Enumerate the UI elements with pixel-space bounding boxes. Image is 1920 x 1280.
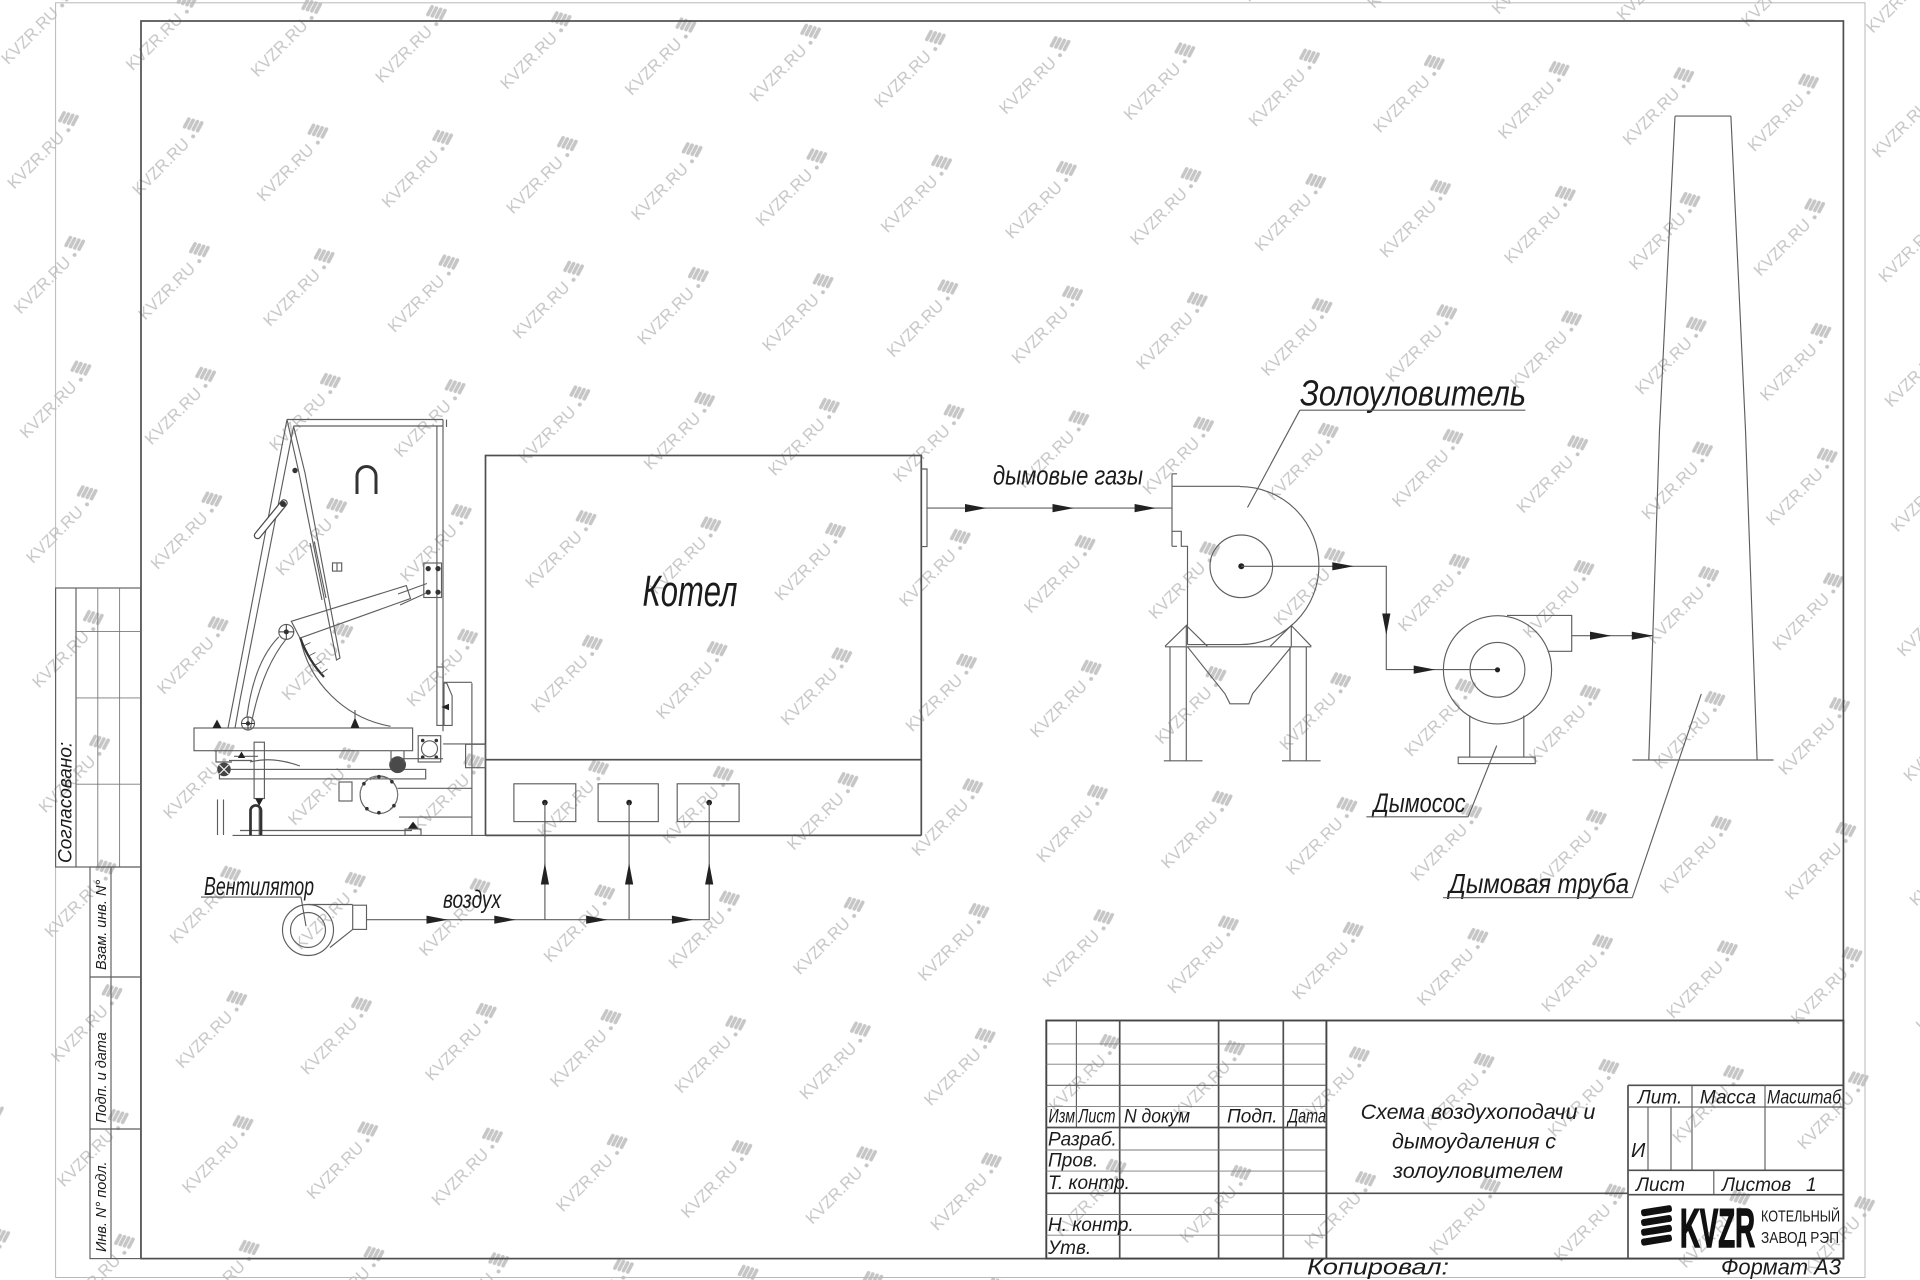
svg-text:Дымовая труба: Дымовая труба [1446,868,1629,899]
svg-text:Котел: Котел [643,567,738,616]
svg-text:Золоуловитель: Золоуловитель [1300,373,1526,414]
svg-text:Взам. инв. N°: Взам. инв. N° [94,880,110,970]
svg-text:Н. контр.: Н. контр. [1048,1215,1134,1236]
svg-text:И: И [1631,1140,1646,1162]
svg-text:KVZR: KVZR [1680,1197,1755,1259]
svg-text:Утв.: Утв. [1047,1238,1091,1259]
svg-text:Листов: Листов [1720,1175,1791,1196]
svg-text:Вентилятор: Вентилятор [204,871,314,901]
svg-text:Лист: Лист [1077,1107,1116,1128]
svg-text:Пров.: Пров. [1048,1151,1098,1172]
svg-text:дымоудаления с: дымоудаления с [1392,1130,1556,1154]
svg-text:Изм: Изм [1049,1107,1076,1128]
svg-text:Дымосос: Дымосос [1371,788,1466,818]
svg-text:золоуловителем: золоуловителем [1392,1159,1563,1183]
svg-text:Лит.: Лит. [1636,1088,1683,1109]
svg-text:1: 1 [1806,1175,1817,1196]
svg-text:КОТЕЛЬНЫЙ: КОТЕЛЬНЫЙ [1761,1207,1840,1226]
svg-text:Подп.: Подп. [1227,1107,1278,1128]
svg-text:дымовые газы: дымовые газы [993,461,1143,491]
svg-text:Согласовано:: Согласовано: [56,742,77,863]
svg-text:Формат А3: Формат А3 [1721,1255,1842,1280]
svg-text:Лист: Лист [1634,1175,1685,1196]
svg-text:Масса: Масса [1700,1088,1756,1109]
svg-text:Дата: Дата [1286,1107,1326,1128]
svg-text:Схема воздухоподачи и: Схема воздухоподачи и [1361,1100,1596,1124]
svg-text:воздух: воздух [443,886,502,914]
svg-text:Копировал:: Копировал: [1307,1255,1449,1280]
svg-text:Инв. N° подл.: Инв. N° подл. [94,1161,110,1252]
svg-text:Подп. и дата: Подп. и дата [94,1032,110,1123]
svg-text:ЗАВОД РЭП: ЗАВОД РЭП [1761,1230,1839,1247]
svg-text:N докум: N докум [1124,1107,1190,1128]
svg-text:Т. контр.: Т. контр. [1048,1173,1130,1194]
svg-text:Масштаб: Масштаб [1767,1088,1842,1109]
svg-text:Разраб.: Разраб. [1048,1130,1117,1151]
